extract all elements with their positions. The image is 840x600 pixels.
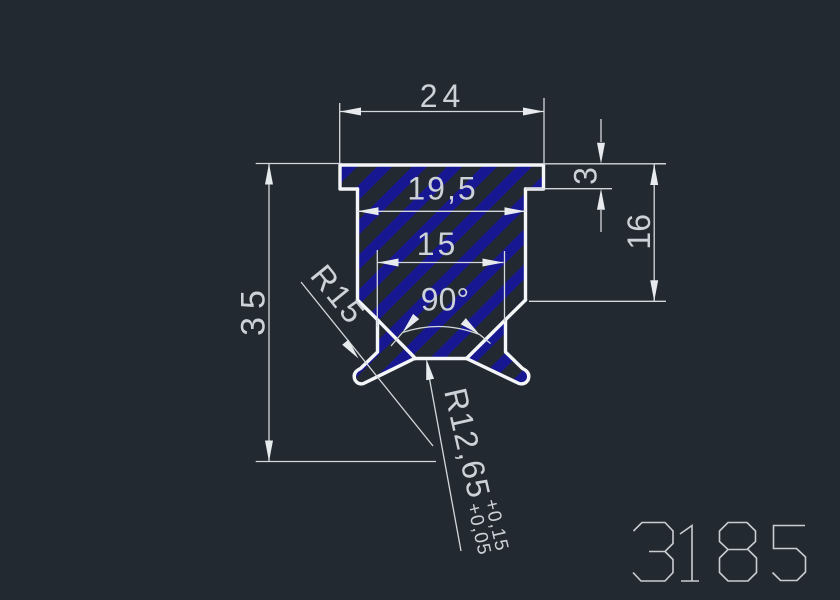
svg-text:16: 16 [621,214,657,250]
svg-text:90°: 90° [421,282,469,318]
svg-text:R12,65: R12,65 [437,384,497,502]
svg-text:19,5: 19,5 [407,171,477,207]
svg-text:3: 3 [567,167,603,185]
svg-text:24: 24 [420,78,466,114]
svg-text:15: 15 [417,226,459,262]
svg-text:35: 35 [234,282,272,336]
